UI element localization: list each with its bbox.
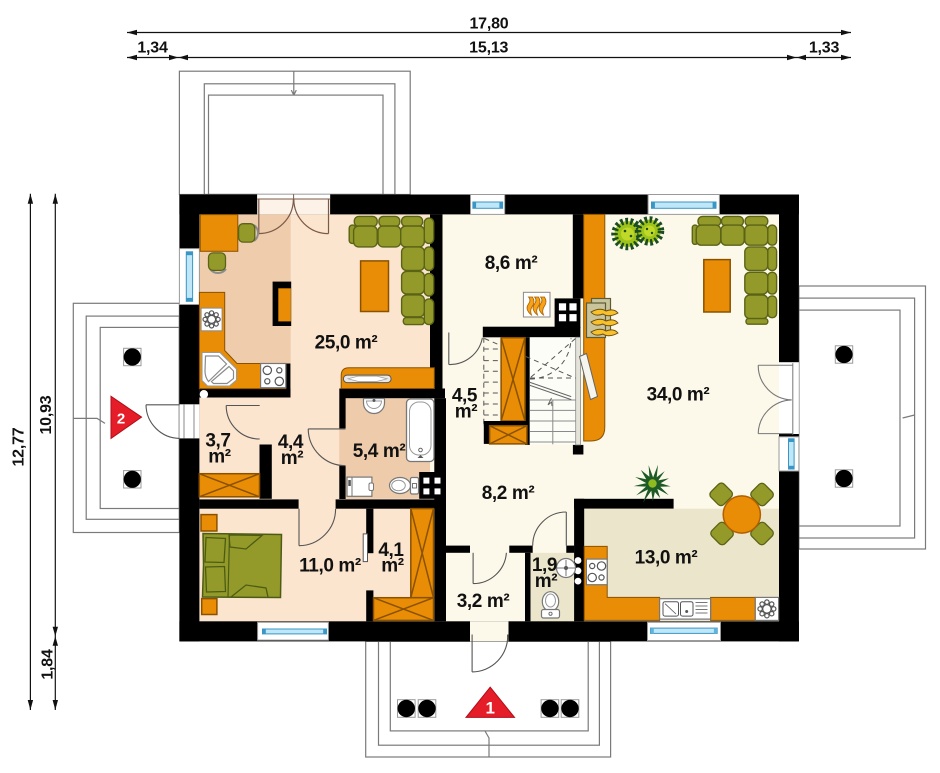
- svg-text:11,0 m²: 11,0 m²: [299, 556, 361, 577]
- svg-text:34,0 m²: 34,0 m²: [647, 385, 710, 406]
- svg-text:3,2 m²: 3,2 m²: [457, 591, 510, 612]
- svg-text:1,34: 1,34: [137, 40, 168, 57]
- svg-text:8,2 m²: 8,2 m²: [482, 483, 535, 504]
- svg-text:8,6 m²: 8,6 m²: [485, 253, 538, 274]
- svg-text:m²: m²: [535, 571, 557, 592]
- svg-text:10,93: 10,93: [38, 395, 55, 434]
- svg-text:m²: m²: [208, 447, 230, 468]
- svg-text:13,0 m²: 13,0 m²: [635, 548, 698, 569]
- svg-text:25,0 m²: 25,0 m²: [315, 333, 378, 354]
- svg-text:17,80: 17,80: [469, 15, 508, 32]
- svg-text:m²: m²: [455, 402, 477, 423]
- svg-text:1,84: 1,84: [40, 649, 57, 680]
- svg-text:1,33: 1,33: [809, 40, 840, 57]
- svg-text:12,77: 12,77: [11, 427, 28, 466]
- svg-text:m²: m²: [381, 556, 403, 577]
- svg-text:m²: m²: [281, 448, 303, 469]
- svg-text:2: 2: [117, 411, 125, 428]
- svg-text:1: 1: [485, 699, 494, 718]
- svg-text:5,4 m²: 5,4 m²: [353, 441, 406, 462]
- svg-text:15,13: 15,13: [469, 40, 508, 57]
